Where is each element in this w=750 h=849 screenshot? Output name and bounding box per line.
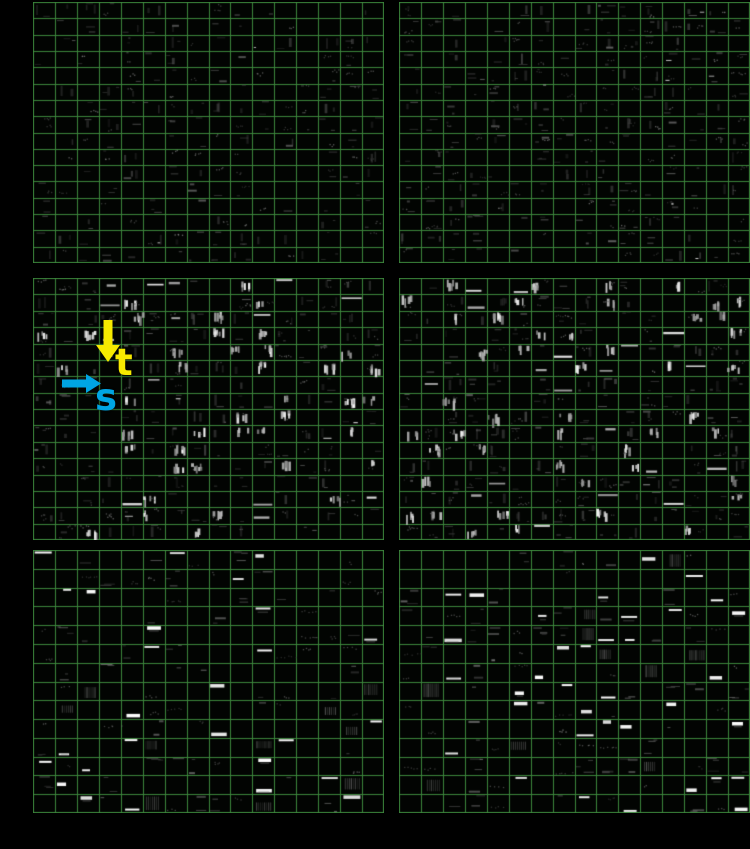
panel-middle-left (33, 278, 384, 540)
panel-bottom-left (33, 550, 384, 813)
feature-grid-canvas-bottom-right (399, 550, 750, 813)
panel-top-right (399, 2, 750, 263)
feature-grid-canvas-top-left (33, 2, 384, 263)
panel-top-left (33, 2, 384, 263)
time-axis-label: t (115, 344, 133, 381)
feature-grid-canvas-middle-left (33, 278, 384, 540)
figure-canvas: t s (0, 0, 750, 849)
feature-grid-canvas-top-right (399, 2, 750, 263)
feature-grid-canvas-middle-right (399, 278, 750, 540)
panel-bottom-right (399, 550, 750, 813)
spectral-axis-label: s (95, 379, 117, 416)
feature-grid-canvas-bottom-left (33, 550, 384, 813)
panel-middle-right (399, 278, 750, 540)
